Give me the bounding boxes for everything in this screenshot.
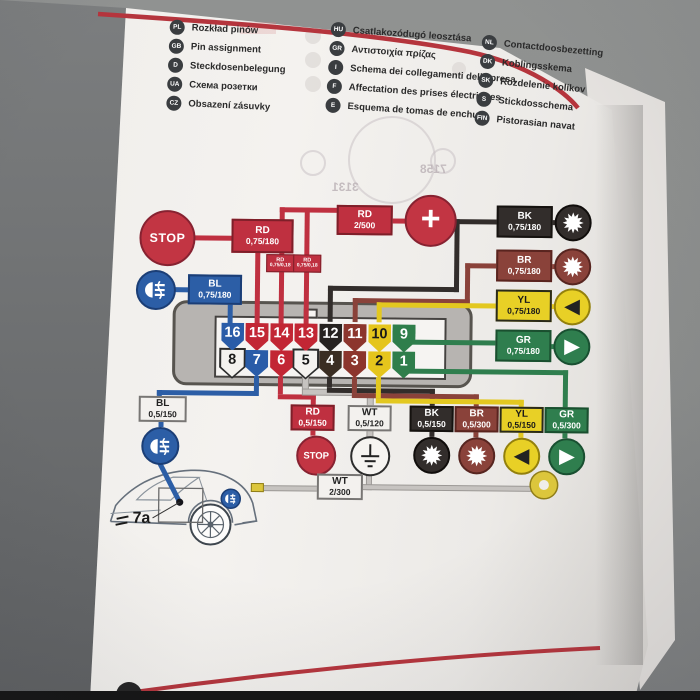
wire-label-br-bottom: BR 0,5/300 xyxy=(454,406,498,432)
wire-label-rd-jumper-a: RD 0,75/0,18 xyxy=(266,254,294,272)
indicator-left-symbol-top: ◀ xyxy=(554,288,591,325)
lamp-starburst-icon xyxy=(563,212,584,233)
car-rear-sketch xyxy=(106,457,267,554)
indicator-left-symbol-bottom: ◀ xyxy=(503,438,540,475)
wire-label-rd-stop-top: RD 0,75/180 xyxy=(231,219,293,254)
right-arrow-icon: ▶ xyxy=(559,447,574,466)
rear-fog-lamp-symbol-top xyxy=(136,270,176,310)
right-arrow-icon: ▶ xyxy=(564,337,579,356)
wire-label-rd-bottom: RD 0,5/150 xyxy=(290,404,334,430)
wire-spec: 0,75/180 xyxy=(508,222,541,232)
wire-ferrule xyxy=(251,483,264,492)
earth-ground-icon xyxy=(358,443,382,469)
wire-label-wt-ground-main: WT 2/300 xyxy=(317,474,363,500)
car-figure-ref: 7a xyxy=(132,510,150,528)
lamp-symbol-bk-top xyxy=(554,204,591,241)
plus-icon: + xyxy=(421,200,441,239)
lamp-starburst-icon xyxy=(421,445,442,466)
left-arrow-icon: ◀ xyxy=(514,447,529,466)
wire-spec: 0,5/300 xyxy=(462,420,490,429)
wire-label-yl-top: YL 0,75/180 xyxy=(496,290,552,323)
lamp-symbol-bk-bottom xyxy=(413,437,450,474)
indicator-right-symbol-bottom: ▶ xyxy=(548,438,585,475)
lamp-starburst-icon xyxy=(562,256,583,277)
photo-bottom-edge xyxy=(0,691,700,700)
wire-spec: 0,75/0,18 xyxy=(270,263,291,269)
wire-label-rd-jumper-b: RD 0,75/0,18 xyxy=(293,254,321,272)
wire-spec: 0,75/0,18 xyxy=(297,264,318,270)
ground-symbol xyxy=(350,436,390,476)
stop-symbol-top: STOP xyxy=(139,210,196,267)
fog-lamp-icon xyxy=(149,437,172,454)
wire-spec: 0,75/180 xyxy=(507,306,540,316)
stop-text: STOP xyxy=(303,450,329,461)
wiring-diagram: STOP RD 0,75/180 RD 2/500 + RD 0,75/0,18… xyxy=(0,0,700,700)
wire-spec: 0,5/150 xyxy=(298,418,326,427)
indicator-right-symbol-top: ▶ xyxy=(553,328,590,365)
rear-fog-lamp-symbol-bottom xyxy=(141,427,179,465)
wire-spec: 0,75/180 xyxy=(246,237,279,247)
wire-label-bk-bottom: BK 0,5/150 xyxy=(409,406,453,432)
wire-spec: 0,75/180 xyxy=(507,346,540,356)
wire-label-gr-top: GR 0,75/180 xyxy=(495,330,551,363)
wire-spec: 2/300 xyxy=(329,488,350,497)
wire-spec: 0,75/180 xyxy=(508,266,541,276)
wire-spec: 0,5/150 xyxy=(507,420,535,429)
wire-label-bk-top: BK 0,75/180 xyxy=(497,206,553,239)
wire-spec: 0,5/150 xyxy=(417,420,445,429)
wire-label-br-top: BR 0,75/180 xyxy=(496,250,552,283)
stop-symbol-bottom: STOP xyxy=(296,435,336,475)
lamp-starburst-icon xyxy=(466,445,487,466)
wire-label-bl-bottom: BL 0,5/150 xyxy=(139,396,187,423)
lamp-symbol-br-top xyxy=(554,248,591,285)
lamp-symbol-br-bottom xyxy=(458,437,495,474)
wire-spec: 2/500 xyxy=(354,221,375,230)
wire-label-gr-bottom: GR 0,5/300 xyxy=(544,407,588,433)
wire-spec: 0,5/150 xyxy=(148,410,176,419)
wire-label-rd-battery: RD 2/500 xyxy=(337,205,393,236)
wire-spec: 0,75/180 xyxy=(198,290,231,300)
wire-label-wt-bottom: WT 0,5/120 xyxy=(347,405,391,431)
wire-label-yl-bottom: YL 0,5/150 xyxy=(499,407,543,433)
stop-text: STOP xyxy=(149,231,185,245)
wire-spec: 0,5/300 xyxy=(552,421,580,430)
ring-terminal-icon xyxy=(531,472,557,498)
left-arrow-icon: ◀ xyxy=(565,297,580,316)
fog-lamp-icon xyxy=(144,281,168,299)
wire-label-bl-top: BL 0,75/180 xyxy=(188,274,242,305)
photo-of-wiring-instruction-page: 7158 3131 PLRozkład pinów GBPin assignme… xyxy=(0,0,700,700)
battery-plus-symbol: + xyxy=(404,195,457,248)
wire-spec: 0,5/120 xyxy=(355,419,383,428)
